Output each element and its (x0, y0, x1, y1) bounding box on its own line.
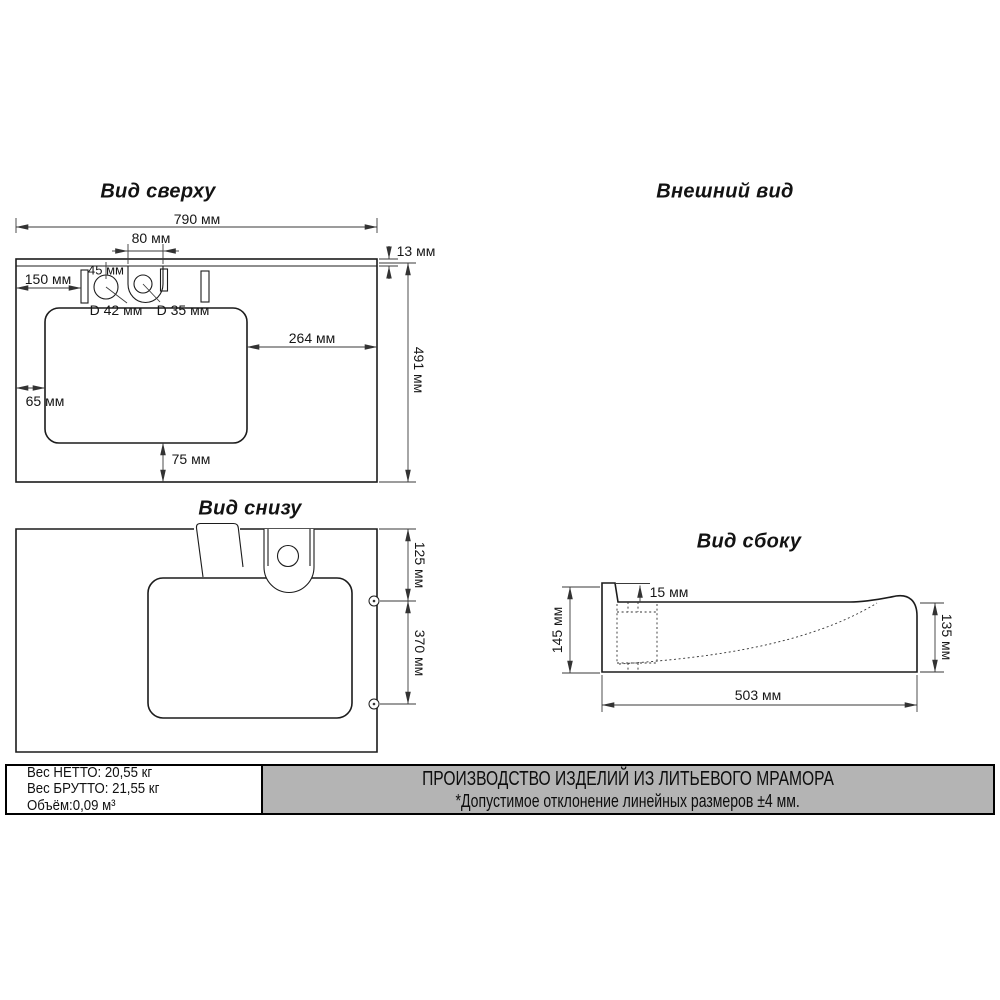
dim-basin-bottom-gap: 75 мм (172, 452, 211, 466)
external-view-title: Внешний вид (656, 181, 793, 204)
side-view-title: Вид сбоку (697, 531, 802, 554)
dim-back-height: 145 мм (550, 607, 564, 654)
dim-right-offset: 264 мм (289, 331, 336, 345)
dim-screw-top-offset: 125 мм (413, 542, 427, 589)
drain-arch (264, 529, 314, 593)
tap-slot (161, 269, 168, 291)
weight-info-box: Вес НЕТТО: 20,55 кг Вес БРУТТО: 21,55 кг… (5, 764, 263, 815)
bottom-view-linework (16, 524, 379, 753)
dim-front-height: 135 мм (940, 614, 954, 661)
volume-text: Объём:0,09 м³ (27, 798, 233, 814)
screw-icon (369, 596, 379, 606)
screw-icon (369, 699, 379, 709)
hidden-lines (617, 602, 877, 671)
dim-overall-width: 790 мм (174, 212, 221, 226)
dim-back-ledge: 15 мм (650, 585, 689, 599)
left-slot (81, 270, 88, 303)
dim-tap-hole-diameter: D 35 мм (157, 303, 210, 317)
manufacturer-banner: ПРОИЗВОДСТВО ИЗДЕЛИЙ ИЗ ЛИТЬЕВОГО МРАМОР… (261, 764, 995, 815)
dim-drain-hole-diameter: D 42 мм (90, 303, 143, 317)
dim-left-offset: 150 мм (25, 272, 72, 286)
basin-outline (45, 308, 247, 443)
top-view-title: Вид сверху (100, 181, 215, 204)
dim-depth: 503 мм (735, 688, 782, 702)
banner-line-1: ПРОИЗВОДСТВО ИЗДЕЛИЙ ИЗ ЛИТЬЕВОГО МРАМОР… (422, 768, 834, 791)
net-weight-text: Вес НЕТТО: 20,55 кг (27, 765, 233, 781)
dim-rim-depth: 13 мм (397, 244, 436, 258)
right-slot (201, 271, 209, 302)
technical-drawing-page: Вид сверху Внешний вид Вид снизу Вид сбо… (0, 0, 1000, 1000)
drawing-linework (0, 0, 1000, 1000)
dim-tap-arch-width: 80 мм (132, 231, 171, 245)
gross-weight-text: Вес БРУТТО: 21,55 кг (27, 781, 233, 797)
banner-line-2: *Допустимое отклонение линейных размеров… (456, 791, 800, 811)
countertop-outline (16, 259, 377, 482)
dim-overall-depth: 491 мм (412, 347, 426, 394)
dim-basin-left-gap: 65 мм (26, 394, 65, 408)
bottom-view-dimensions (379, 529, 416, 704)
bottom-view-title: Вид снизу (198, 498, 301, 521)
recess-outline (148, 578, 352, 718)
tap-arch (128, 266, 163, 303)
dim-hole-offset: 45 мм (88, 264, 124, 277)
funnel-notch (196, 524, 243, 578)
dim-screw-spacing: 370 мм (413, 630, 427, 677)
top-view-linework (16, 259, 377, 482)
